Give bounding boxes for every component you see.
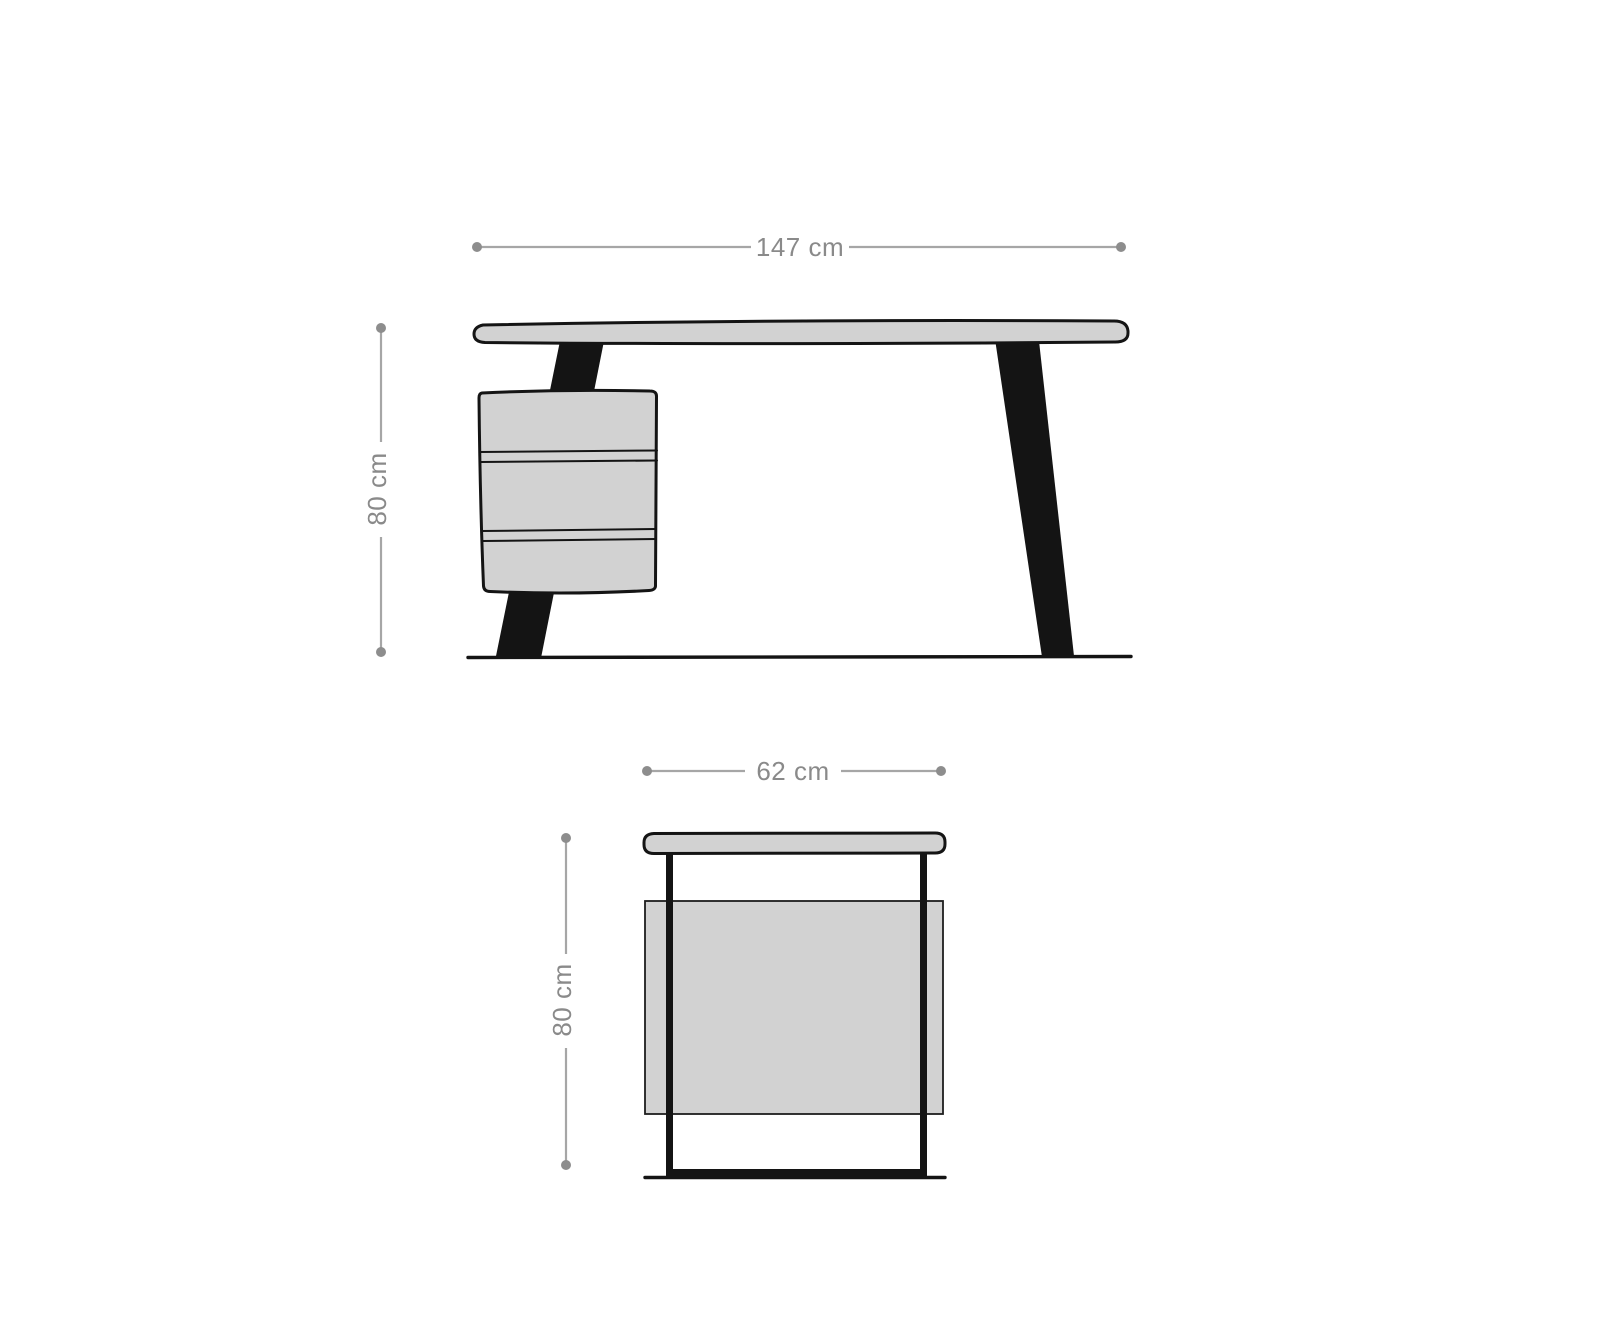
side-tabletop <box>644 833 945 854</box>
dimension-endpoint-dot <box>1116 242 1126 252</box>
side-height-dimension: 80 cm <box>547 833 577 1170</box>
dimension-endpoint-dot <box>472 242 482 252</box>
drawer-unit <box>479 390 657 593</box>
dimension-endpoint-dot <box>376 323 386 333</box>
desk-right-leg <box>995 339 1074 657</box>
side-width-dimension: 62 cm <box>642 756 946 786</box>
floor-line <box>468 657 1131 658</box>
front-width-dimension: 147 cm <box>472 232 1126 262</box>
front-height-label: 80 cm <box>362 452 392 525</box>
side-height-label: 80 cm <box>547 963 577 1036</box>
desk-tabletop <box>474 321 1128 344</box>
drawer-unit-body <box>479 390 657 593</box>
dimension-endpoint-dot <box>561 833 571 843</box>
front-width-label: 147 cm <box>756 232 844 262</box>
side-view: 62 cm 80 cm <box>547 756 946 1178</box>
front-view: 147 cm 80 cm <box>362 232 1131 658</box>
dimension-diagram: 147 cm 80 cm <box>0 0 1600 1333</box>
side-drawer-box <box>645 901 943 1114</box>
dimension-endpoint-dot <box>642 766 652 776</box>
dimension-endpoint-dot <box>376 647 386 657</box>
side-rear-leg <box>920 853 927 1176</box>
dimension-endpoint-dot <box>561 1160 571 1170</box>
side-width-label: 62 cm <box>756 756 829 786</box>
dimension-endpoint-dot <box>936 766 946 776</box>
leg-runner <box>666 1169 927 1177</box>
front-height-dimension: 80 cm <box>362 323 392 657</box>
side-front-leg <box>666 853 673 1176</box>
